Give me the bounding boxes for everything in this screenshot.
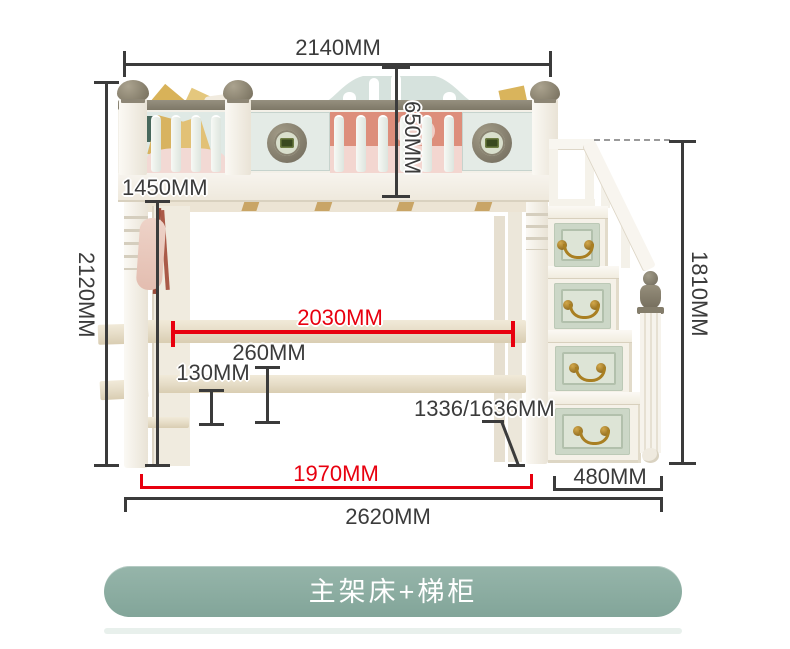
dim-line: [395, 67, 398, 198]
dim-tick: [549, 51, 552, 77]
dim-tick: [382, 66, 410, 69]
hanging-clothes: [136, 217, 167, 291]
dim-tick: [255, 421, 280, 424]
dim-line: [124, 497, 663, 500]
dim-label-under-bed-clearance: 1450MM: [122, 176, 208, 200]
newel-finial-ball: [643, 271, 658, 286]
dim-label-overall-length: 2620MM: [345, 505, 431, 529]
dim-tick: [669, 462, 696, 465]
baluster: [356, 115, 366, 172]
stair-tread: [548, 206, 608, 219]
dim-tick: [94, 81, 119, 84]
post-finial-base: [534, 99, 556, 103]
stair-drawer: [555, 408, 630, 455]
dim-tick: [123, 51, 126, 77]
stair-drawer: [554, 223, 600, 267]
baluster: [171, 115, 181, 172]
baluster: [191, 115, 201, 172]
stair-tread: [548, 392, 641, 405]
dim-tick: [94, 464, 119, 467]
post-finial-base: [227, 99, 249, 103]
newel-foot-ball: [642, 448, 659, 463]
dim-line: [105, 82, 108, 467]
side-rail-low: [147, 417, 189, 428]
dim-tick-red: [530, 474, 533, 489]
leader-foot: [508, 464, 525, 467]
bed-post: [119, 99, 147, 175]
variant-option-button[interactable]: 主架床+梯柜: [104, 566, 682, 617]
bed-top-rail: [118, 100, 558, 110]
dim-line: [124, 63, 551, 66]
newel-post: [640, 313, 661, 453]
dim-line-red: [173, 330, 514, 334]
porthole-medallion-left: [267, 123, 307, 163]
dim-line: [266, 367, 269, 423]
dim-tick: [124, 497, 127, 512]
baluster: [151, 115, 161, 172]
dim-label-desk-height-options: 1336/1636MM: [414, 397, 555, 421]
dim-tick: [660, 497, 663, 512]
bed-post: [225, 99, 251, 175]
stair-drawer: [554, 283, 611, 329]
dim-extension-dashed-line: [594, 139, 670, 141]
dim-tick: [145, 464, 170, 467]
handle-bail: [575, 367, 606, 382]
dim-label-floor-inner-length: 1970MM: [293, 462, 379, 486]
dim-tick-red: [511, 321, 515, 347]
drawer-handle: [557, 240, 597, 262]
next-option-sliver: [104, 628, 682, 634]
handle-bail: [563, 244, 594, 259]
drawer-handle: [573, 426, 613, 448]
dim-label-overall-height: 2120MM: [74, 252, 98, 338]
dim-label-stair-cabinet-height: 1810MM: [687, 251, 711, 337]
baluster: [334, 115, 344, 172]
stair-tread: [548, 266, 619, 279]
dim-tick-red: [140, 474, 143, 489]
stair-drawer: [555, 346, 623, 391]
dim-tick-red: [171, 321, 175, 347]
dim-tick: [145, 200, 170, 203]
porthole-core: [274, 130, 300, 156]
dim-label-guardrail-height: 650MM: [400, 101, 424, 174]
dim-tick: [553, 476, 556, 491]
stair-tread: [548, 330, 632, 343]
dim-label-inner-length: 2030MM: [297, 306, 383, 330]
dim-label-stair-cabinet-depth: 480MM: [573, 465, 646, 489]
handle-bail: [579, 430, 610, 445]
baluster: [444, 115, 454, 172]
handle-bail: [569, 304, 600, 319]
porthole-emblem: [280, 138, 294, 148]
drawer-handle: [563, 300, 603, 322]
dim-tick: [199, 389, 224, 392]
porthole-medallion-right: [472, 123, 512, 163]
post-turnings: [526, 204, 548, 250]
drawer-handle: [569, 363, 609, 385]
dim-tick: [199, 423, 224, 426]
baluster: [211, 115, 221, 172]
dim-line-red: [140, 486, 533, 489]
dim-tick: [660, 476, 663, 491]
dim-tick: [255, 366, 280, 369]
dim-line: [210, 390, 213, 426]
dim-line: [681, 141, 684, 464]
dim-line: [156, 201, 159, 466]
porthole-core: [479, 130, 505, 156]
dim-tick: [382, 195, 410, 198]
newel-finial-urn: [640, 285, 661, 309]
product-dimension-diagram: 2140MM 650MM 1450MM 2120MM 1810MM 2030MM: [0, 0, 790, 649]
dim-tick: [669, 140, 696, 143]
baluster: [378, 115, 388, 172]
post-finial-base: [121, 99, 145, 103]
porthole-emblem: [485, 138, 499, 148]
dim-label-bed-length: 2140MM: [295, 36, 381, 60]
dim-label-beam-height: 130MM: [176, 361, 249, 385]
